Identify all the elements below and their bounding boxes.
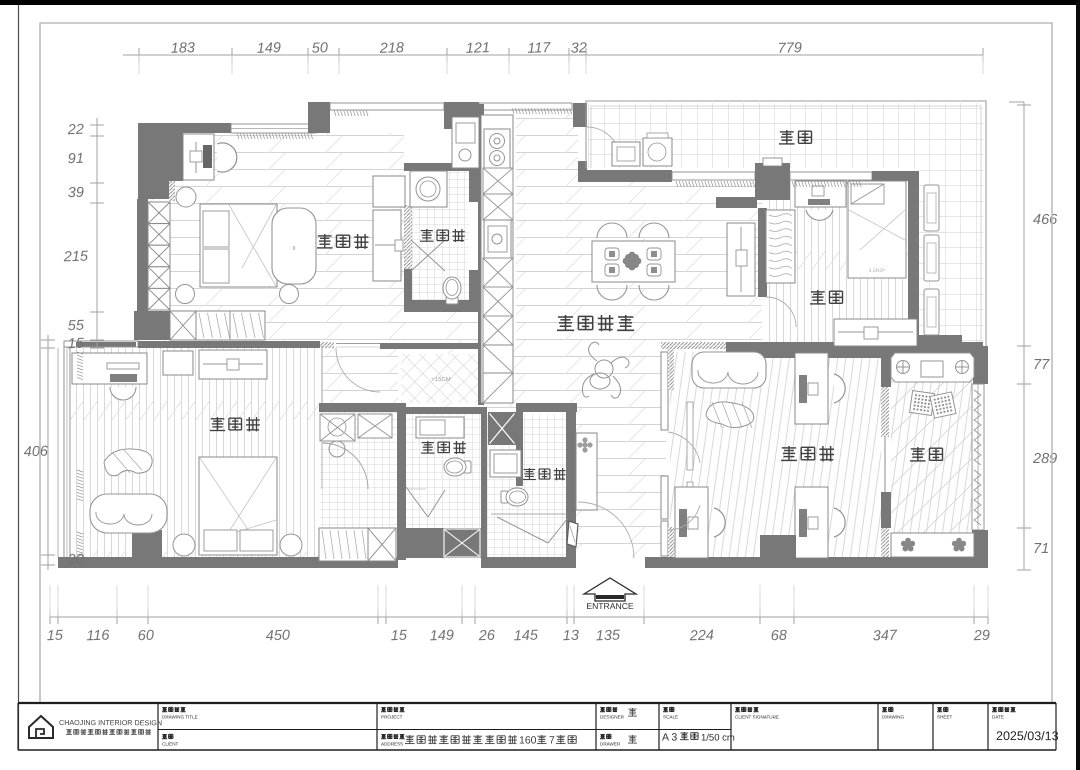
svg-text:779: 779 xyxy=(777,40,802,57)
svg-text:91: 91 xyxy=(68,151,85,168)
svg-text:PROJECT: PROJECT xyxy=(381,715,403,720)
svg-text:39: 39 xyxy=(68,185,85,202)
svg-text:68: 68 xyxy=(771,628,788,645)
svg-text:466: 466 xyxy=(1033,212,1058,228)
svg-text:347: 347 xyxy=(872,628,898,645)
svg-text:218: 218 xyxy=(378,40,404,57)
svg-text:55: 55 xyxy=(68,318,86,335)
svg-text:15: 15 xyxy=(391,628,409,645)
svg-text:3.5R2P: 3.5R2P xyxy=(869,268,886,274)
svg-text:117: 117 xyxy=(527,40,552,57)
svg-text:DESIGNER: DESIGNER xyxy=(600,715,625,720)
svg-text:116: 116 xyxy=(86,628,111,645)
svg-text:60: 60 xyxy=(138,628,155,645)
svg-text:26: 26 xyxy=(478,628,497,645)
svg-text:13: 13 xyxy=(563,628,580,645)
svg-text:DRAWING: DRAWING xyxy=(882,715,904,720)
svg-text:215: 215 xyxy=(62,249,89,266)
svg-text:224: 224 xyxy=(688,628,714,645)
svg-text:149: 149 xyxy=(429,628,454,645)
svg-text:DRAWING TITLE: DRAWING TITLE xyxy=(162,715,198,720)
svg-text:77: 77 xyxy=(1033,357,1050,373)
svg-text:406: 406 xyxy=(23,444,49,461)
svg-text:A 3: A 3 xyxy=(662,732,677,744)
svg-text:ADDRESS: ADDRESS xyxy=(381,742,403,747)
svg-text:CLIENT: CLIENT xyxy=(162,742,179,747)
svg-text:CLIENT SIGNATURE: CLIENT SIGNATURE xyxy=(735,715,779,720)
svg-text:160: 160 xyxy=(519,735,537,747)
svg-text:20: 20 xyxy=(67,552,85,569)
svg-text:289: 289 xyxy=(1032,451,1057,467)
svg-text:183: 183 xyxy=(170,40,195,57)
svg-text:50: 50 xyxy=(312,40,329,57)
svg-text:22: 22 xyxy=(67,122,85,139)
svg-text:SCALE: SCALE xyxy=(663,715,678,720)
svg-text:CHAOJING INTERIOR DESIGN: CHAOJING INTERIOR DESIGN xyxy=(59,718,162,727)
svg-text:15: 15 xyxy=(68,336,86,353)
svg-text:ENTRANCE: ENTRANCE xyxy=(586,601,634,611)
svg-text:29: 29 xyxy=(973,628,991,645)
svg-text:2025/03/13: 2025/03/13 xyxy=(996,729,1059,743)
svg-text:71: 71 xyxy=(1033,541,1049,557)
svg-text:DATE: DATE xyxy=(992,715,1004,720)
svg-text:450: 450 xyxy=(265,628,290,645)
svg-text:32: 32 xyxy=(571,40,588,57)
svg-text:121: 121 xyxy=(465,40,490,57)
svg-text:149: 149 xyxy=(256,40,281,57)
svg-text:15: 15 xyxy=(47,628,65,645)
svg-text:145: 145 xyxy=(513,628,539,645)
svg-text:135: 135 xyxy=(595,628,621,645)
svg-text:1/50 cm: 1/50 cm xyxy=(701,733,735,744)
svg-text:+15CM: +15CM xyxy=(431,377,451,383)
svg-text:7: 7 xyxy=(549,735,555,747)
svg-text:DRAWER: DRAWER xyxy=(600,742,621,747)
svg-text:SHEET: SHEET xyxy=(937,715,953,720)
